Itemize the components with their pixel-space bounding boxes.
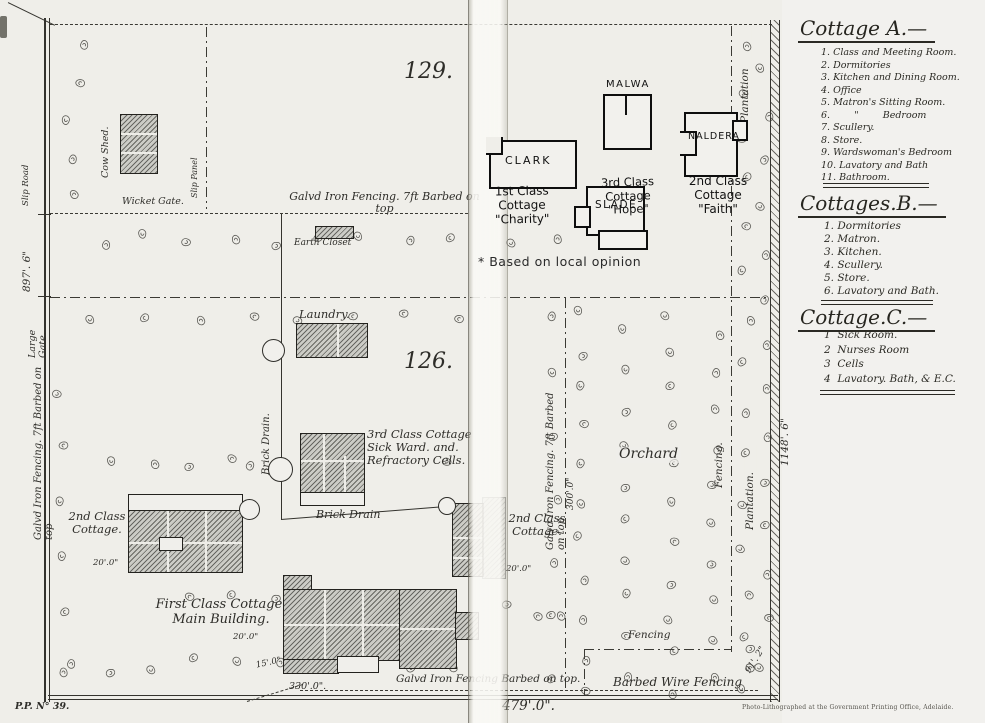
legend-item: 2. Dormitories — [821, 60, 960, 73]
slade-building-south — [598, 230, 648, 250]
tree-symbol — [736, 402, 751, 417]
site-plan: Slip Road 897'. 6" Large Gate. Galvd Iro… — [0, 0, 985, 723]
tree-symbol — [757, 150, 770, 163]
tree-symbol — [179, 591, 194, 606]
tree-symbol — [757, 427, 772, 442]
legend-item: 1. Class and Meeting Room. — [821, 47, 960, 60]
legend-item: 10. Lavatory and Bath — [821, 160, 960, 173]
tree-symbol — [63, 149, 78, 164]
tree-symbol — [667, 496, 682, 511]
tree-symbol — [96, 235, 112, 251]
tree-symbol — [70, 78, 85, 93]
tree-symbol — [401, 230, 416, 245]
tree-symbol — [619, 516, 631, 528]
legend-item: 9. Wardswoman's Bedroom — [821, 147, 960, 160]
tree-symbol — [394, 309, 409, 324]
tree-symbol — [757, 62, 769, 74]
legend-list-cottage-c: 1 Sick Room. 2 Nurses Room 3 Cells 4 Lav… — [824, 328, 956, 386]
tree-symbol — [739, 589, 751, 601]
tree-symbol — [622, 552, 636, 566]
tree-symbol — [664, 383, 677, 396]
tree-symbol — [64, 188, 75, 199]
tree-symbol — [244, 311, 259, 326]
main-building-porch — [337, 656, 379, 673]
main-building-east — [399, 589, 457, 669]
tree-symbol — [757, 380, 772, 395]
faith-annotation: 2nd Class Cottage "Faith" — [676, 174, 760, 216]
tree-symbol — [618, 323, 633, 338]
clark-label: CLARK — [505, 155, 551, 168]
tree-symbol — [542, 306, 557, 321]
main-building-south — [283, 659, 339, 674]
legend-item: 3 Cells — [824, 357, 956, 372]
tree-symbol — [666, 575, 680, 589]
tree-symbol — [149, 663, 161, 675]
tree-symbol — [355, 231, 367, 243]
tree-symbol — [621, 364, 636, 379]
tree-symbol — [547, 492, 561, 506]
tree-symbol — [617, 666, 633, 682]
tree-symbol — [663, 310, 675, 322]
tree-symbol — [234, 655, 246, 667]
second-class-left-building — [128, 510, 243, 573]
tree-symbol — [739, 635, 751, 647]
tree-symbol — [756, 659, 770, 673]
tree-symbol — [575, 459, 590, 474]
tree-symbol — [710, 328, 723, 341]
legend-item: 1. Dormitories — [824, 220, 939, 233]
legend-item: 4 Lavatory. Bath, & E.C. — [824, 372, 956, 387]
tree-symbol — [226, 592, 238, 604]
legend-item: 2. Matron. — [824, 233, 939, 246]
tree-symbol — [738, 682, 751, 695]
laundry-well — [262, 339, 285, 362]
tree-symbol — [737, 359, 749, 371]
tree-symbol — [756, 245, 772, 261]
tree-symbol — [707, 475, 723, 491]
tree-symbol — [710, 440, 724, 454]
tree-symbol — [756, 565, 771, 580]
sick-ward-well — [268, 457, 293, 482]
malwa-chimney-mark — [625, 96, 627, 115]
tree-symbol — [740, 663, 752, 675]
legend-item: 2 Nurses Room — [824, 343, 956, 358]
tree-symbol — [508, 236, 520, 248]
tree-symbol — [61, 114, 77, 130]
tree-symbol — [578, 498, 591, 511]
tree-symbol — [572, 610, 588, 626]
malwa-label: MALWA — [606, 79, 650, 91]
tree-symbol — [107, 456, 122, 471]
tree-symbol — [705, 670, 719, 684]
tree-symbol — [551, 609, 564, 622]
tree-symbol — [57, 550, 73, 566]
tree-symbol — [620, 402, 632, 414]
tree-symbol — [51, 384, 67, 400]
legend-item: 3. Kitchen and Dining Room. — [821, 72, 960, 85]
legend-rule-a — [823, 183, 929, 188]
tree-symbol — [710, 633, 723, 646]
tree-symbol — [188, 656, 199, 667]
orchard-label: Orchard — [616, 447, 681, 463]
tree-symbol — [544, 553, 560, 569]
slade-building-foot — [574, 206, 591, 228]
tree-symbol — [740, 312, 754, 326]
tree-symbol — [758, 613, 774, 629]
tree-symbol — [757, 335, 773, 351]
tree-symbol — [709, 517, 721, 529]
tree-symbol — [665, 613, 677, 625]
tree-symbol — [737, 39, 751, 53]
tree-symbol — [183, 456, 198, 471]
legend-item: 4. Office — [821, 85, 960, 98]
tree-symbol — [738, 496, 753, 511]
charity-annotation: 1st Class Cottage "Charity" — [470, 183, 575, 227]
tree-symbol — [547, 230, 562, 245]
tree-symbol — [666, 422, 680, 436]
tree-symbol — [739, 84, 754, 99]
legend-list-cottages-b: 1. Dormitories 2. Matron. 3. Kitchen. 4.… — [824, 220, 939, 298]
tree-symbol — [711, 594, 723, 606]
legend-item: 7. Scullery. — [821, 122, 960, 135]
legend-item: 5. Store. — [824, 272, 939, 285]
tree-symbol — [270, 235, 284, 249]
second-class-left-well — [239, 499, 260, 520]
tree-symbol — [669, 648, 681, 660]
tree-symbol — [241, 455, 256, 470]
tree-symbol — [576, 686, 591, 701]
legend-item: 3. Kitchen. — [824, 246, 939, 259]
tree-symbol — [619, 478, 633, 492]
tree-symbol — [706, 363, 722, 379]
tree-symbol — [756, 521, 771, 536]
tree-symbol — [74, 35, 90, 51]
tree-symbol — [575, 381, 590, 396]
hope-annotation: 3rd Class Cottage "Hope" — [590, 175, 665, 218]
legend-item: 5. Matron's Sitting Room. — [821, 97, 960, 110]
tree-symbol — [575, 650, 591, 666]
tree-symbol — [736, 541, 750, 555]
tree-symbol — [139, 316, 151, 328]
cow-shed-building — [120, 114, 158, 174]
legend-title-cottages-b: Cottages.B.— — [798, 191, 946, 218]
tree-symbol — [574, 419, 590, 435]
tree-symbol — [181, 232, 197, 248]
tree-symbol — [225, 232, 239, 246]
main-building-west — [283, 589, 401, 661]
tree-symbol — [449, 314, 465, 330]
tree-symbol — [548, 426, 563, 441]
tree-symbol — [759, 472, 774, 487]
tree-symbol — [756, 289, 770, 303]
legend-item: 4. Scullery. — [824, 259, 939, 272]
legend-item: 8. Store. — [821, 135, 960, 148]
tree-symbol — [138, 228, 153, 243]
legend-item: 6. " Bedroom — [821, 110, 960, 123]
tree-symbol — [527, 611, 541, 625]
page-fold-seam — [468, 0, 508, 723]
tree-symbol — [546, 677, 557, 688]
sick-ward-building — [300, 433, 365, 493]
tree-symbol — [54, 441, 69, 456]
tree-symbol — [445, 236, 456, 247]
tree-symbol — [58, 610, 70, 622]
clark-notch — [486, 137, 503, 155]
tree-symbol — [621, 589, 636, 604]
legend-rule-c — [820, 390, 955, 395]
tree-symbol — [662, 685, 677, 700]
local-opinion-note: * Based on local opinion — [478, 255, 641, 270]
tree-symbol — [664, 536, 679, 551]
naldera-label: NALDERA — [688, 131, 740, 142]
tree-symbol — [616, 631, 632, 647]
tree-symbol — [706, 554, 721, 569]
tree-symbol — [736, 220, 751, 235]
tree-symbol — [578, 346, 590, 358]
tree-symbol — [88, 314, 99, 325]
tree-symbol — [548, 366, 562, 380]
tree-symbol — [759, 106, 774, 121]
tree-symbol — [667, 347, 679, 359]
tree-symbol — [572, 533, 586, 547]
earth-closet-building — [315, 226, 354, 239]
legend-title-cottage-a: Cottage A.— — [798, 16, 935, 43]
tree-symbol — [736, 266, 751, 281]
tree-symbol — [145, 457, 158, 470]
second-class-right-well — [438, 497, 456, 515]
tree-symbol — [705, 402, 718, 415]
tree-symbol — [190, 312, 204, 326]
legend-list-cottage-a: 1. Class and Meeting Room. 2. Dormitorie… — [821, 47, 960, 185]
legend-item: 6. Lavatory and Bath. — [824, 285, 939, 298]
tree-symbol — [740, 451, 751, 462]
tree-symbol — [574, 305, 588, 319]
tree-symbol — [221, 453, 234, 466]
tree-symbol — [575, 570, 590, 585]
malwa-building — [603, 94, 652, 150]
tree-symbol — [104, 663, 118, 677]
tree-symbol — [55, 496, 70, 511]
legend-item: 1 Sick Room. — [824, 328, 956, 343]
sick-ward-verandah — [300, 492, 365, 506]
laundry-building — [296, 323, 368, 358]
